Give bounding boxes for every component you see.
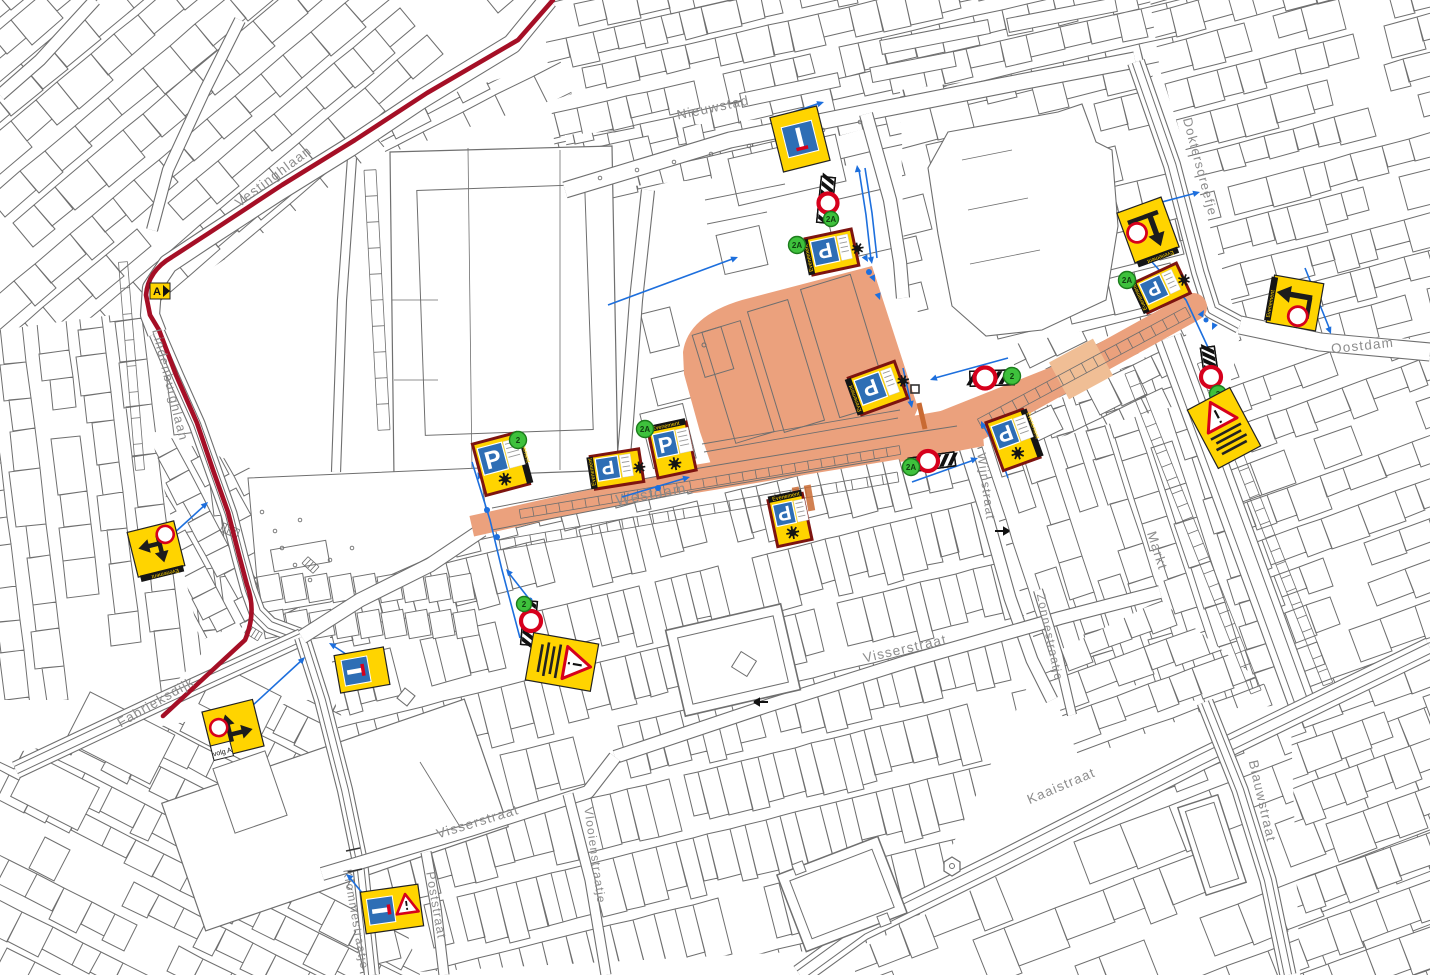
svg-text:2A: 2A [640, 425, 650, 434]
svg-text:2A: 2A [906, 463, 916, 472]
svg-text:2A: 2A [826, 215, 836, 224]
svg-text:2A: 2A [1122, 276, 1132, 285]
svg-text:2: 2 [516, 436, 521, 445]
svg-text:2: 2 [1010, 372, 1015, 381]
svg-text:A: A [153, 286, 161, 298]
svg-text:2: 2 [522, 600, 527, 609]
svg-text:2A: 2A [792, 241, 802, 250]
